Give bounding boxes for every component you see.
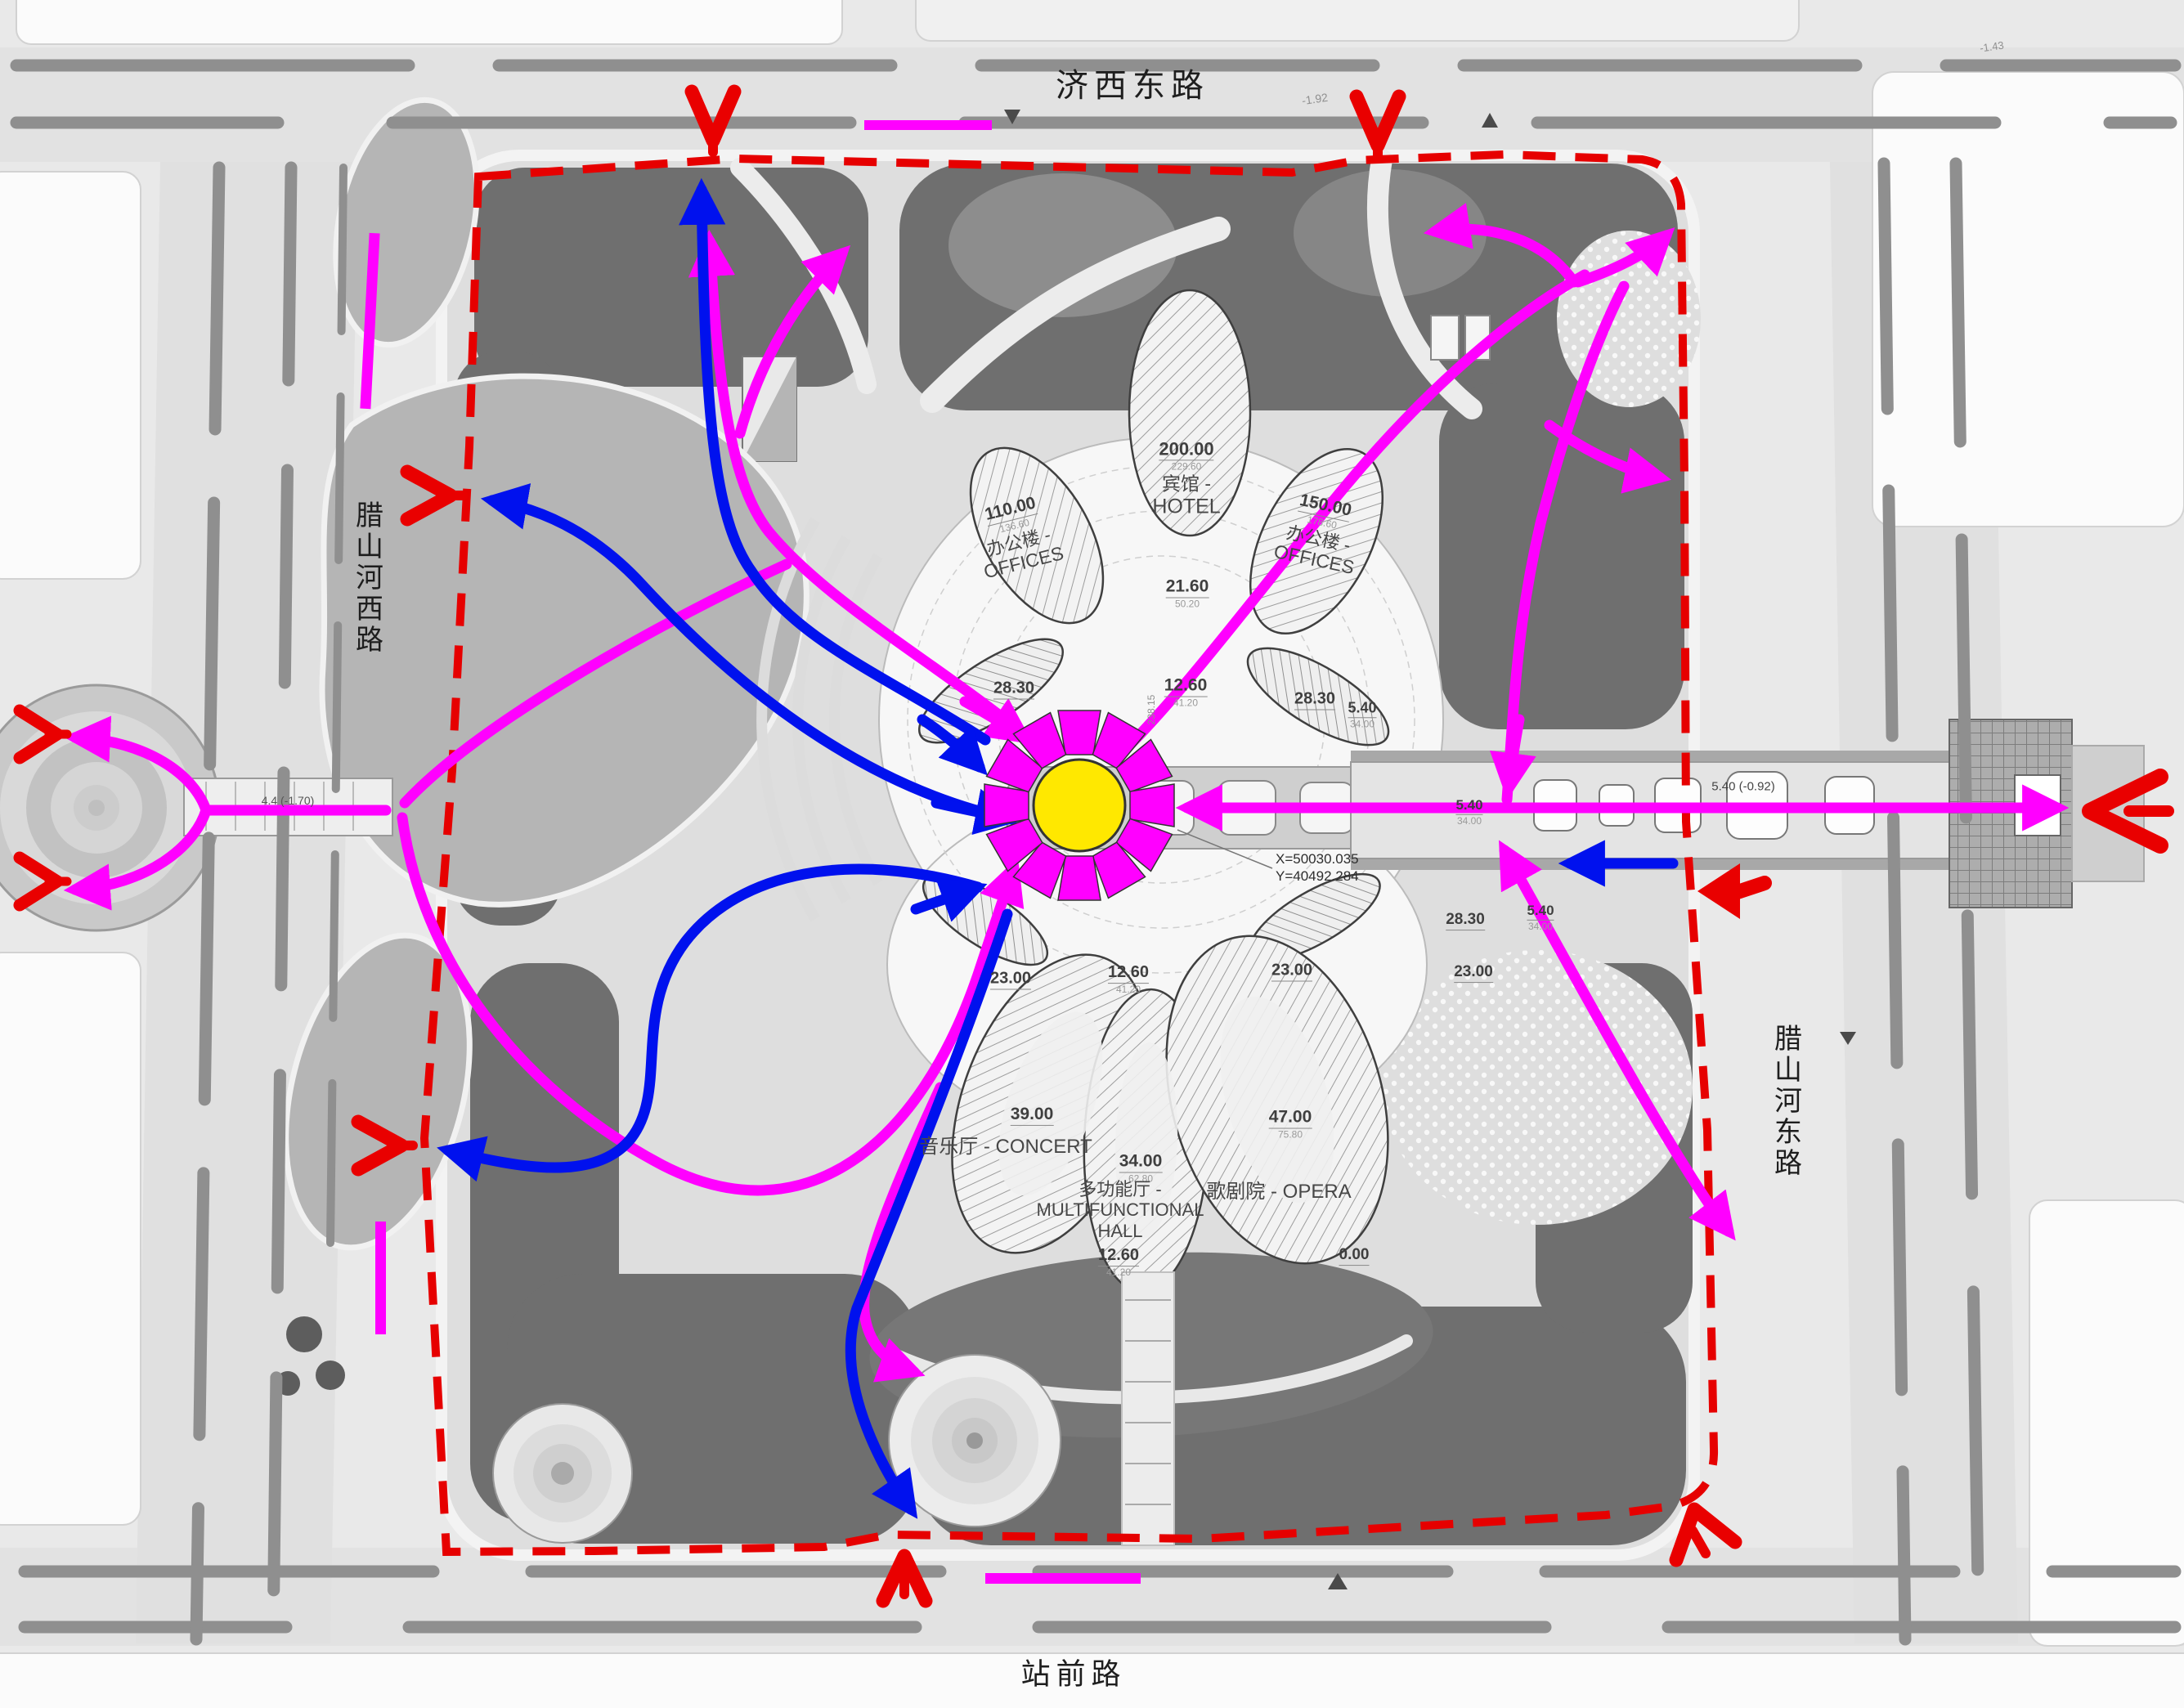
plan-graphics xyxy=(0,0,2184,1708)
concert-name-en: CONCERT xyxy=(996,1136,1092,1158)
label-pod-ne-level: 28.30 xyxy=(1294,690,1335,711)
multifunctional-name-en2: HALL xyxy=(1037,1221,1204,1241)
label-core-upper-level: 21.60 50.20 xyxy=(1166,577,1209,611)
label-concert-name: 音乐厅 - CONCERT xyxy=(919,1136,1092,1159)
hotel-elevation: 200.00 xyxy=(1159,438,1213,460)
concert-name-cn: 音乐厅 - xyxy=(919,1136,990,1158)
sun-core xyxy=(1034,760,1125,851)
hotel-name-cn: 宾馆 - xyxy=(1152,473,1220,494)
label-core-mid-level: 12.60 41.20 xyxy=(1164,676,1208,710)
label-ground-level: 0.00 xyxy=(1339,1246,1370,1266)
label-hotel: 200.00 229.60 宾馆 - HOTEL xyxy=(1152,438,1220,518)
label-pod-sw-level: 23.00 xyxy=(990,970,1031,990)
bar-south xyxy=(985,1573,1141,1584)
label-west-bridge: 4.4 (-1.70) xyxy=(262,794,315,807)
label-pod-east-level: 28.30 xyxy=(1446,911,1485,930)
road-label-west: 腊山河西路 xyxy=(350,500,382,656)
coordinate-y: Y=40492.284 xyxy=(1276,867,1359,885)
label-east-link: 5.40 (-0.92) xyxy=(1711,779,1775,793)
label-link-west-level: 5.40 34.00 xyxy=(1455,797,1482,827)
label-axis-tick: 238.15 xyxy=(1146,695,1158,725)
label-pod-east2-level: 23.00 xyxy=(1454,963,1493,983)
road-label-east: 腊山河东路 xyxy=(1769,1024,1801,1179)
bar-north xyxy=(864,120,992,130)
label-coordinates: X=50030.035 Y=40492.284 xyxy=(1276,850,1359,885)
multifunctional-name-en: MULTIFUNCTIONAL xyxy=(1037,1199,1204,1220)
site-circulation-plan: 济西东路 站前路 腊山河西路 腊山河东路 110.00 136.60 办公楼 -… xyxy=(0,0,2184,1708)
hotel-name-en: HOTEL xyxy=(1152,495,1220,518)
bar-west-lower xyxy=(375,1222,386,1334)
opera-name-en: OPERA xyxy=(1283,1181,1352,1203)
label-pod-se-level: 23.00 xyxy=(1271,962,1312,982)
label-opera-name: 歌剧院 - OPERA xyxy=(1206,1181,1351,1204)
coordinate-x: X=50030.035 xyxy=(1276,850,1359,867)
opera-name-cn: 歌剧院 - xyxy=(1206,1181,1277,1203)
road-label-north: 济西东路 xyxy=(1056,67,1209,105)
label-pod-ne-s-level: 5.40 34.00 xyxy=(1348,699,1376,729)
label-forecourt-level: 12.60 41.20 xyxy=(1108,963,1149,996)
label-opera-elevation: 47.00 75.80 xyxy=(1269,1108,1312,1141)
label-concert-elevation: 39.00 xyxy=(1011,1105,1054,1126)
multifunctional-name-cn: 多功能厅 - xyxy=(1037,1179,1204,1199)
hotel-elevation-sub: 229.60 xyxy=(1152,462,1220,473)
label-multifunctional-name: 多功能厅 - MULTIFUNCTIONAL HALL xyxy=(1037,1179,1204,1241)
label-link-south-level: 5.40 34.00 xyxy=(1527,903,1554,932)
label-pod-nw-level: 28.30 xyxy=(993,679,1034,700)
label-south-court-level: 12.60 41.20 xyxy=(1098,1246,1139,1279)
road-label-south: 站前路 xyxy=(1020,1657,1126,1691)
